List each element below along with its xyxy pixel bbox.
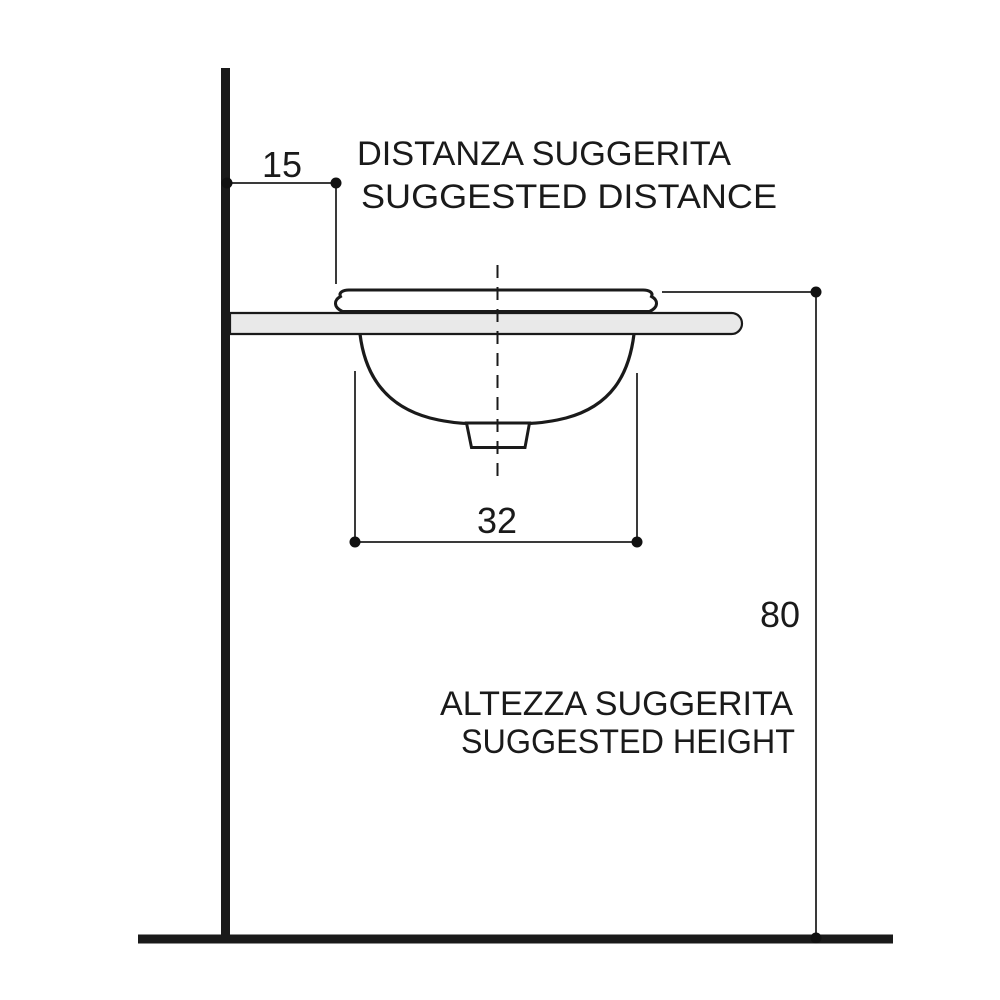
diagram-svg: 15 DISTANZA SUGGERITA SUGGESTED DISTANCE… [0,0,1000,1000]
installation-diagram: 15 DISTANZA SUGGERITA SUGGESTED DISTANCE… [0,0,1000,1000]
washbasin [335,265,656,478]
dim-width-dot-right [632,537,643,548]
dimension-width: 32 [350,371,643,548]
dim-height-dot-bottom [811,933,822,944]
basin-rim [335,290,656,312]
height-label-italian: ALTEZZA SUGGERITA [440,685,793,723]
distance-label-english: SUGGESTED DISTANCE [361,178,777,216]
countertop [230,313,742,334]
dimension-height: 80 [662,287,822,944]
height-label-english: SUGGESTED HEIGHT [461,723,795,761]
dim-width-dot-left [350,537,361,548]
dim-height-dot-top [811,287,822,298]
dim-distance-value: 15 [262,144,302,185]
dim-height-value: 80 [760,594,800,635]
dim-distance-dot-right [331,178,342,189]
dim-distance-dot-left [222,178,233,189]
dimension-distance: 15 [222,144,342,284]
distance-label-italian: DISTANZA SUGGERITA [357,135,731,173]
dim-width-value: 32 [477,500,517,541]
